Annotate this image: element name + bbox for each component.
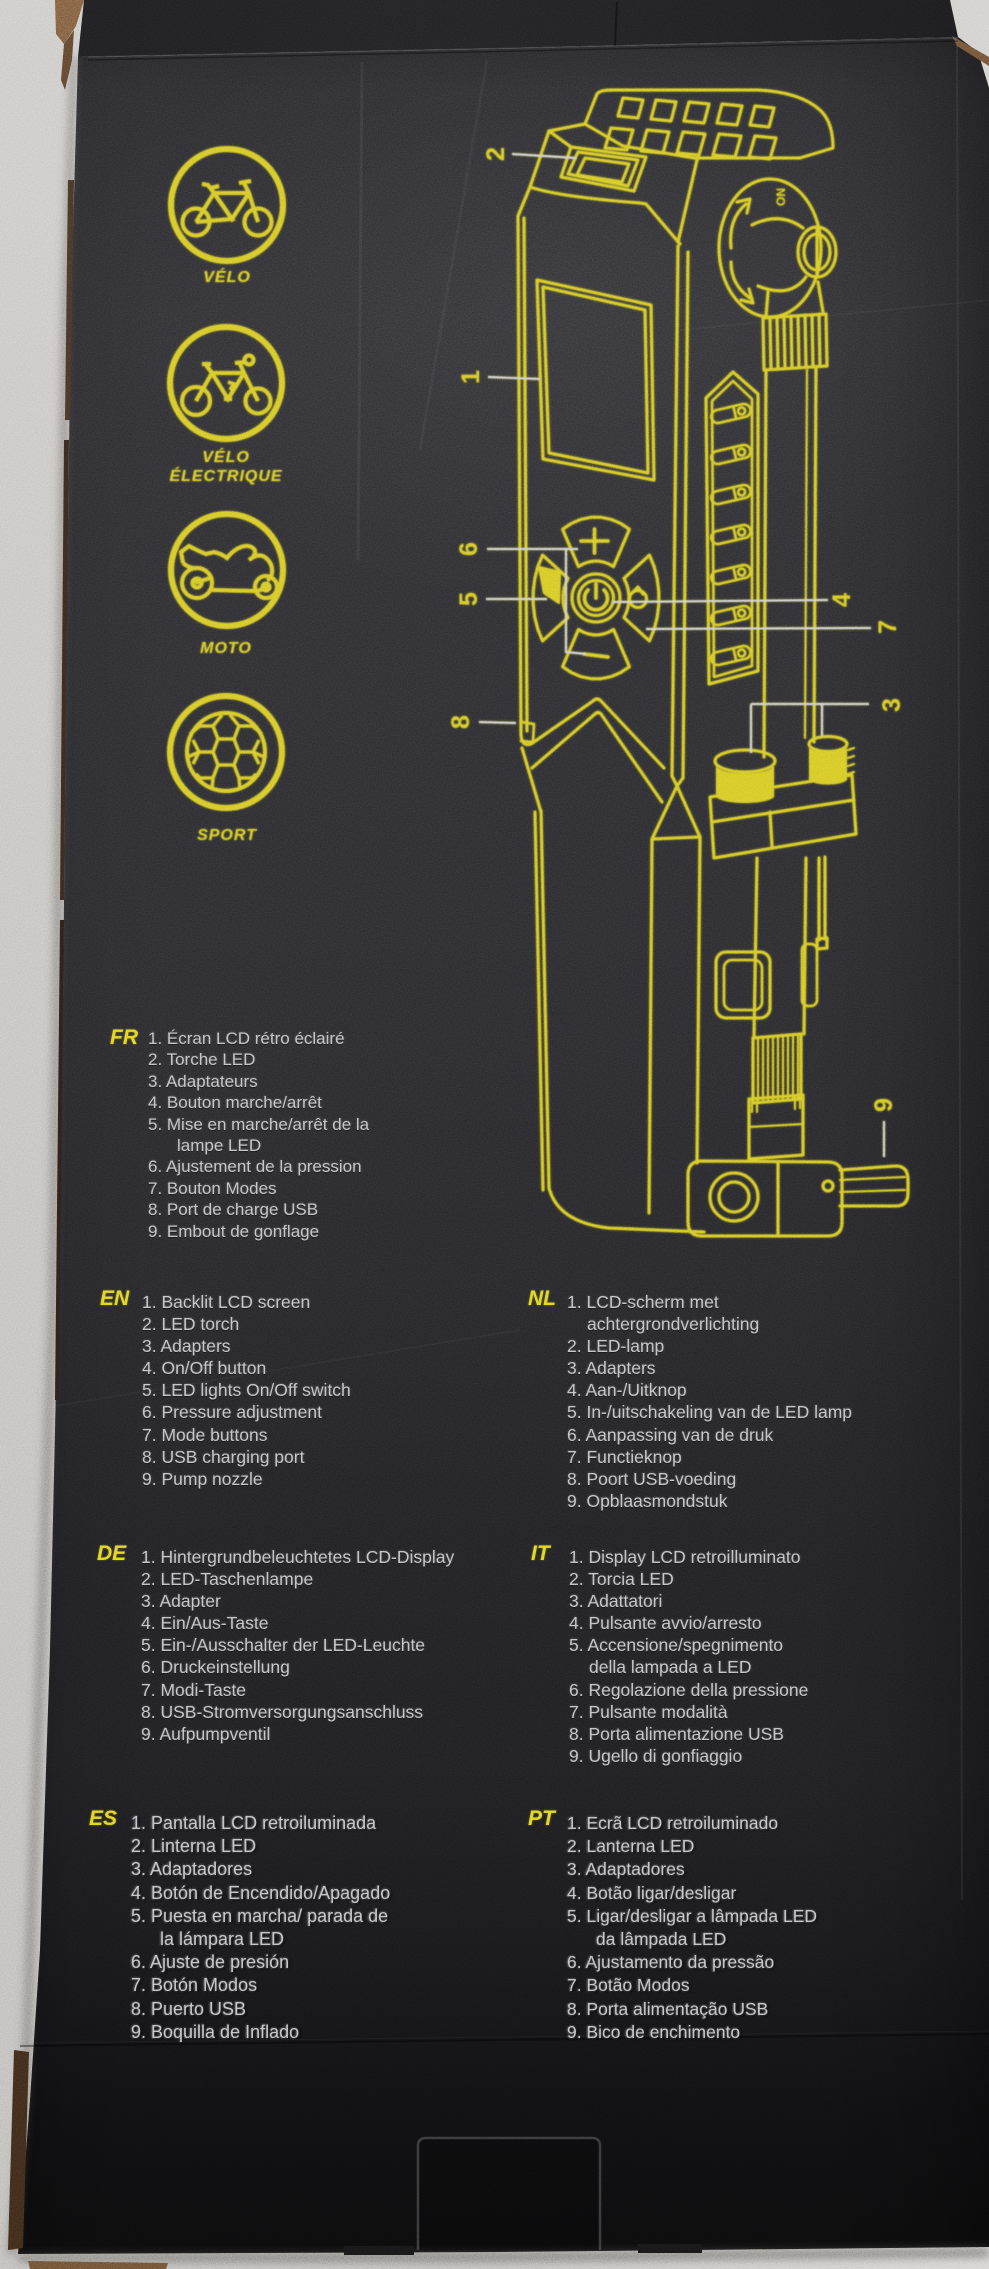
svg-text:6: 6	[455, 542, 483, 556]
svg-text:9: 9	[870, 1098, 898, 1112]
svg-text:7: 7	[874, 620, 902, 634]
svg-text:SPORT: SPORT	[197, 827, 257, 844]
svg-text:1: 1	[457, 370, 485, 384]
svg-text:8: 8	[447, 715, 475, 729]
svg-text:ON: ON	[774, 188, 788, 206]
svg-text:ÉLECTRIQUE: ÉLECTRIQUE	[169, 466, 282, 485]
svg-text:4: 4	[828, 593, 856, 607]
svg-text:VÉLO: VÉLO	[203, 267, 251, 286]
svg-text:MOTO: MOTO	[200, 640, 252, 657]
svg-text:3: 3	[878, 698, 906, 712]
svg-text:VÉLO: VÉLO	[202, 447, 250, 466]
svg-text:5: 5	[455, 592, 483, 606]
svg-text:2: 2	[482, 147, 510, 161]
